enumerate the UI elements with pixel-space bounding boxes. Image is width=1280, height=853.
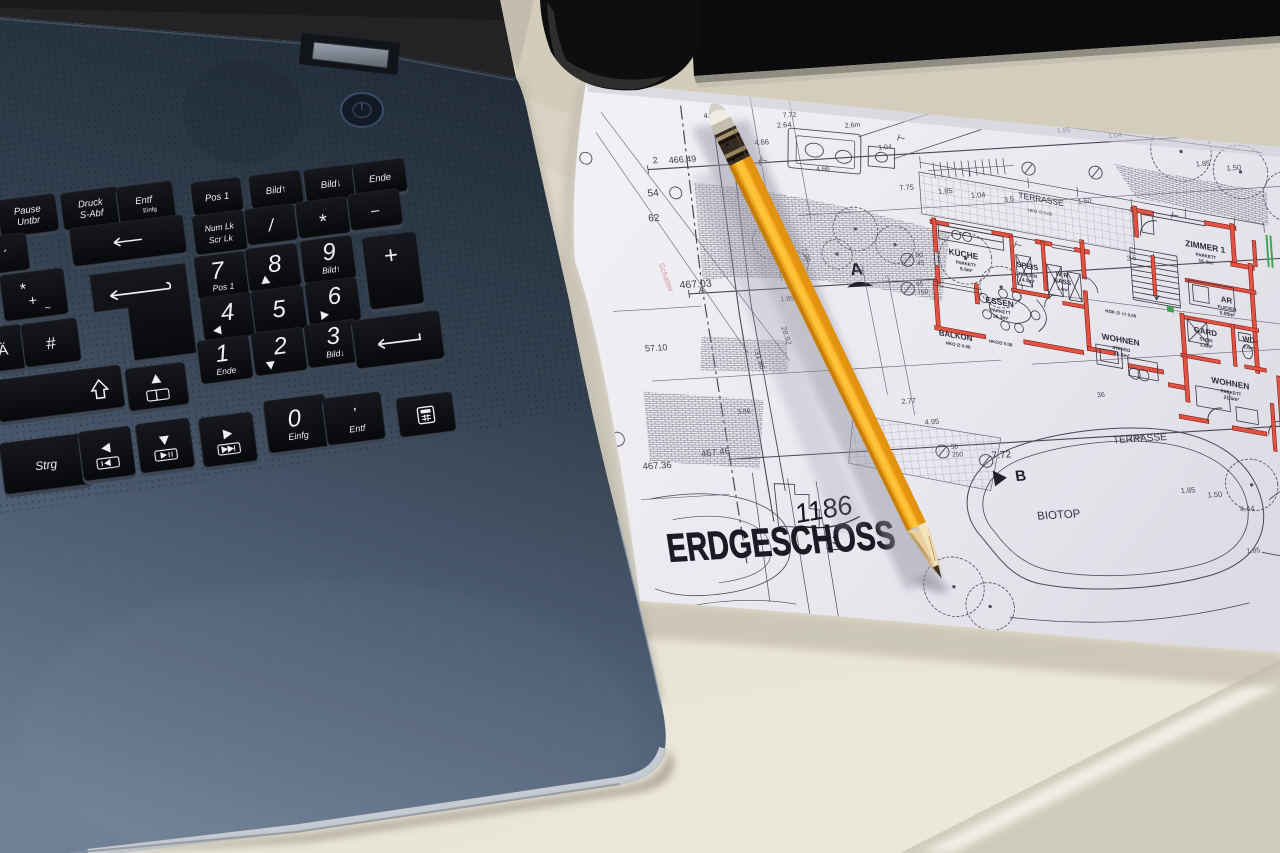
svg-text:1.85: 1.85 [1180, 485, 1196, 495]
svg-text:1.50: 1.50 [1226, 163, 1242, 173]
svg-text:54: 54 [647, 188, 660, 200]
svg-text:2.64: 2.64 [776, 120, 792, 130]
svg-text:467.03: 467.03 [679, 278, 713, 292]
svg-text:50: 50 [915, 252, 924, 259]
svg-text:Strg: Strg [34, 457, 58, 474]
svg-text:57.10: 57.10 [644, 342, 668, 353]
svg-text:466.49: 466.49 [668, 154, 697, 166]
svg-text:750: 750 [917, 289, 929, 297]
svg-text:1.04: 1.04 [878, 144, 893, 152]
svg-text:50: 50 [950, 444, 959, 451]
svg-text:2.77: 2.77 [901, 396, 917, 406]
svg-text:4.44: 4.44 [1239, 504, 1255, 514]
svg-text:62: 62 [648, 213, 661, 225]
svg-text:45: 45 [917, 260, 926, 267]
svg-text:4.95: 4.95 [924, 417, 940, 427]
svg-text:3.86: 3.86 [737, 408, 752, 416]
svg-text:1.50: 1.50 [1207, 490, 1223, 500]
svg-text:1.85: 1.85 [1195, 159, 1211, 169]
svg-text:36: 36 [1097, 392, 1106, 399]
svg-text:7.75: 7.75 [899, 183, 915, 193]
svg-text:7.72: 7.72 [991, 449, 1012, 461]
svg-text:1.85: 1.85 [1246, 547, 1261, 555]
svg-text:2.6m: 2.6m [844, 122, 861, 130]
svg-text:250: 250 [952, 451, 964, 459]
svg-text:65: 65 [916, 281, 925, 288]
svg-text:Entf: Entf [135, 194, 154, 207]
svg-text:7.72: 7.72 [782, 112, 797, 120]
svg-text:4.66: 4.66 [816, 166, 831, 174]
